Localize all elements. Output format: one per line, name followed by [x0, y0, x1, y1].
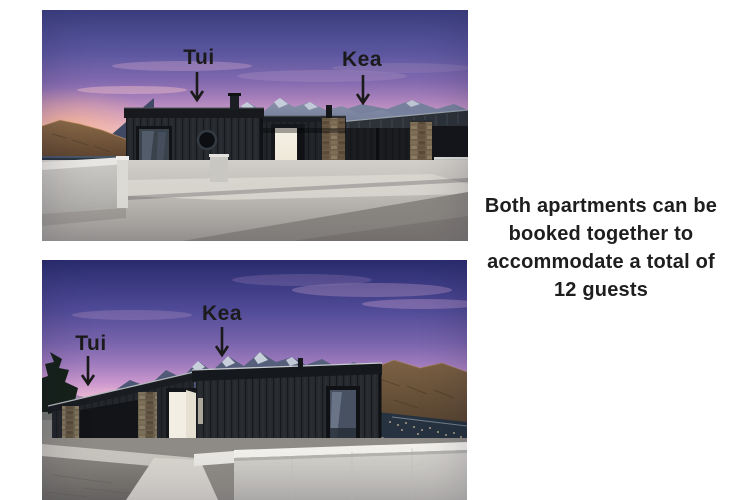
- down-arrow-icon: [79, 355, 97, 387]
- photo-bottom: Kea Tui: [42, 260, 467, 500]
- caption-line: booked together to: [455, 220, 747, 248]
- apartment-label-kea: Kea: [197, 303, 247, 324]
- caption-line: Both apartments can be: [455, 192, 747, 220]
- photo-top: Tui Kea: [42, 10, 468, 241]
- caption-line: accommodate a total of: [455, 248, 747, 276]
- foreground: [42, 154, 468, 241]
- caption: Both apartments can be booked together t…: [455, 192, 747, 304]
- apartment-label-kea: Kea: [337, 49, 387, 70]
- down-arrow-icon: [213, 326, 231, 358]
- apartment-label-tui: Tui: [66, 333, 116, 354]
- photo-bottom-scene: [42, 260, 467, 500]
- caption-line: 12 guests: [455, 276, 747, 304]
- down-arrow-icon: [354, 74, 372, 106]
- apartment-label-tui: Tui: [174, 47, 224, 68]
- photo-top-scene: [42, 10, 468, 241]
- foreground: [42, 438, 467, 500]
- down-arrow-icon: [188, 71, 206, 103]
